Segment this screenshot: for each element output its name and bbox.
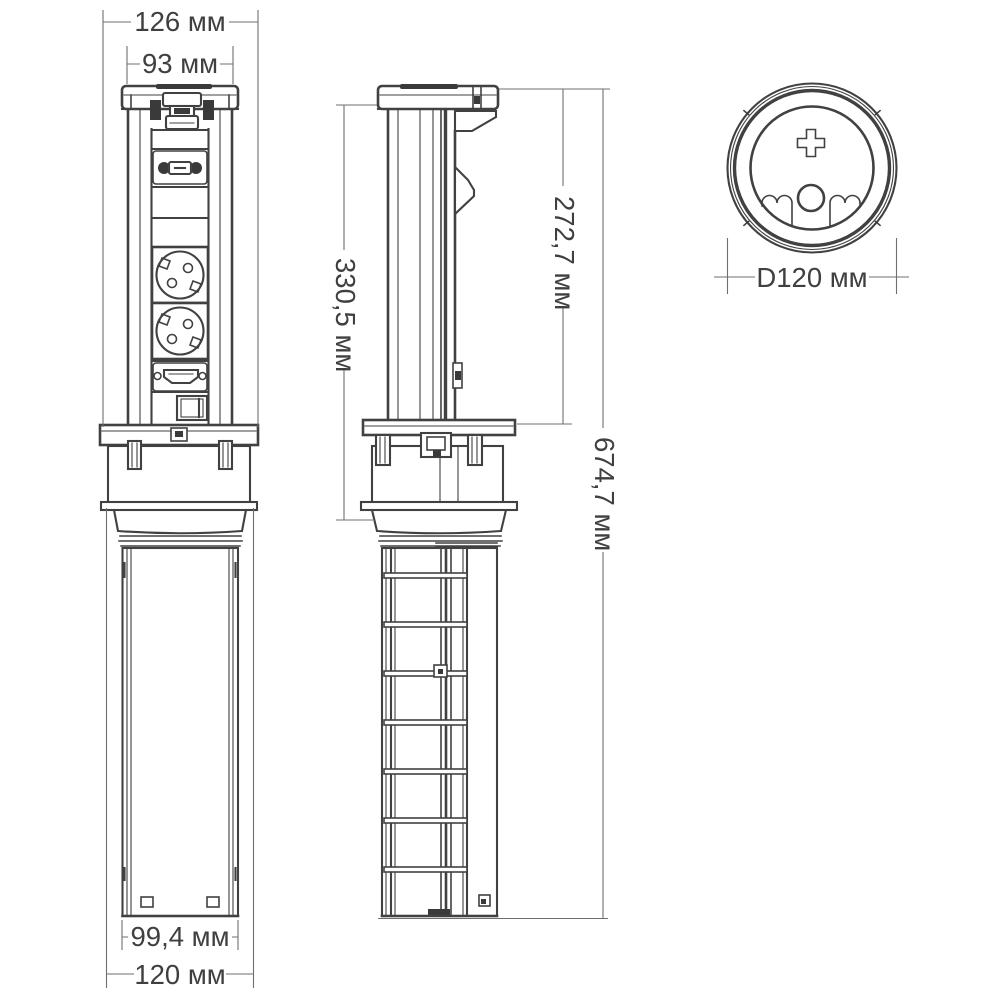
plus-mark (798, 130, 825, 157)
dim-front-outer-width: 126 мм (134, 6, 225, 37)
column-side (388, 110, 496, 422)
mounting-flange-front (100, 425, 258, 445)
center-button (798, 185, 824, 211)
dim-under-height: 330,5 мм (330, 258, 361, 372)
cap-bracket (455, 111, 496, 131)
technical-drawing: 126 мм 93 мм 99,4 мм 120 мм 330,5 мм 272… (0, 0, 1000, 1000)
lid-cap-side (378, 84, 498, 109)
threaded-collar-side (361, 433, 517, 546)
usb-module (153, 151, 207, 184)
under-counter-tube-side (378, 543, 608, 919)
hdmi-port (153, 363, 207, 391)
dim-front-cap-width: 93 мм (142, 48, 218, 79)
side-clip (453, 363, 462, 388)
switch-port (177, 396, 207, 420)
top-view (728, 84, 897, 253)
threaded-collar-front (101, 441, 257, 546)
front-view (100, 84, 258, 916)
side-hook (455, 167, 474, 214)
dim-above-height: 272,7 мм (549, 196, 580, 310)
dim-total-height: 674,7 мм (589, 437, 620, 551)
locking-nut-side (372, 510, 506, 533)
schuko-socket-top (152, 247, 208, 303)
dim-tube-width: 99,4 мм (131, 921, 230, 952)
schuko-socket-bottom (152, 303, 208, 359)
dim-base-width: 120 мм (134, 959, 225, 990)
under-counter-tube-front (123, 548, 239, 916)
outer-rim (728, 84, 897, 253)
dim-diameter: D120 мм (756, 262, 867, 293)
flange-latch-mechanism (421, 433, 451, 457)
drawing-canvas: 126 мм 93 мм 99,4 мм 120 мм 330,5 мм 272… (0, 0, 1000, 1000)
locking-nut-front (114, 510, 246, 533)
